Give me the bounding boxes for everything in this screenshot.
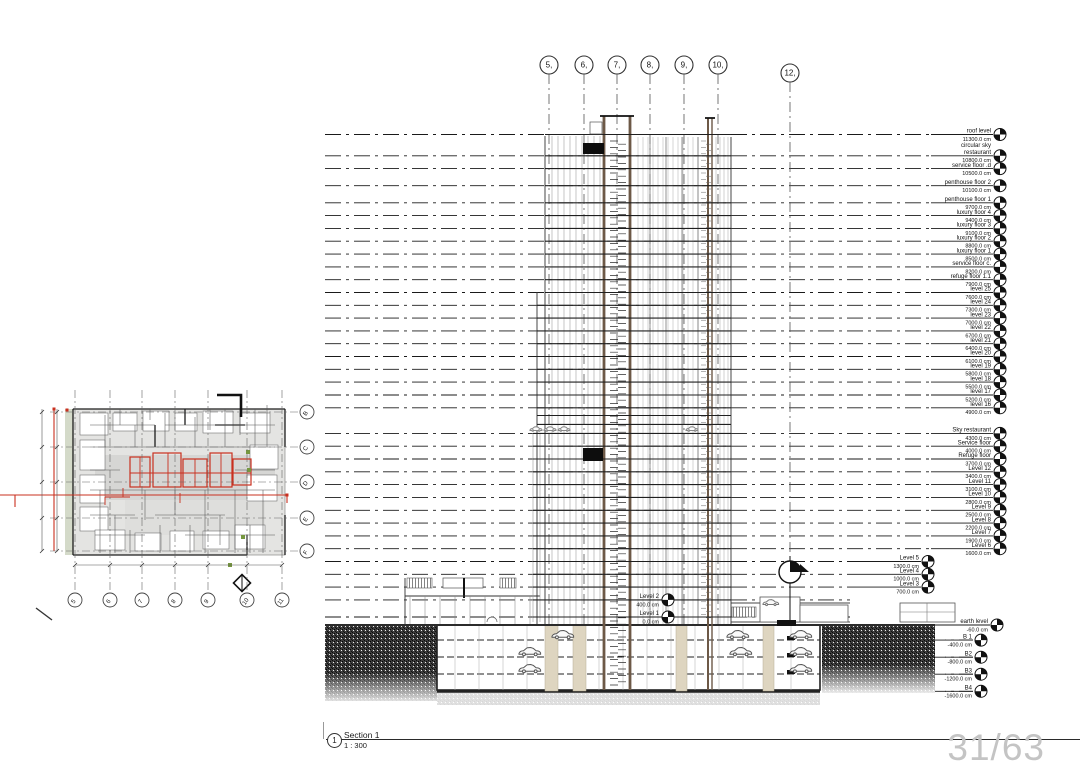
- car-wheel: [688, 430, 690, 432]
- level-name: Level 6: [972, 543, 992, 549]
- plan-room: [80, 440, 105, 470]
- earth-fade-left: [325, 672, 437, 706]
- level-elevation: 400.0 cm: [636, 602, 659, 608]
- datum-level-icon: [922, 581, 934, 593]
- grid-bubble-label: 9,: [681, 61, 688, 70]
- level-name: Level 11: [969, 479, 992, 485]
- car-wheel: [745, 653, 748, 656]
- plan-red-node: [66, 409, 69, 412]
- datum-quadrant: [994, 344, 1000, 350]
- level-row: Level 82200.0 cm: [931, 517, 1006, 531]
- building-section: [325, 116, 955, 706]
- car-wheel: [560, 430, 562, 432]
- datum-quadrant: [994, 369, 1000, 375]
- level-row: level 216400.0 cm: [931, 338, 1006, 352]
- datum-quadrant: [1000, 180, 1006, 186]
- datum-quadrant: [991, 625, 997, 631]
- level-name: Level 7: [972, 530, 992, 536]
- datum-level-icon: [994, 466, 1006, 478]
- datum-quadrant: [994, 280, 1000, 286]
- car-wheel: [523, 653, 526, 656]
- grid-bubble-label: 5,: [546, 61, 553, 70]
- level-elevation: 0.0 cm: [642, 619, 659, 625]
- plan-grid-bubble: 6: [103, 593, 117, 607]
- car-wheel: [794, 670, 797, 673]
- level-row: Level 2400.0 cm: [628, 594, 674, 608]
- grid-bubble: 8,: [641, 56, 659, 74]
- datum-level-icon: [994, 453, 1006, 465]
- datum-level-icon: [994, 504, 1006, 516]
- datum-quadrant: [994, 169, 1000, 175]
- datum-level-icon: [994, 287, 1006, 299]
- plan-corner-slash: [36, 608, 52, 620]
- level-name: penthouse floor 2: [945, 180, 992, 186]
- datum-quadrant: [1000, 338, 1006, 344]
- section-marker-arrow: [800, 564, 809, 572]
- level-row: Level 92500.0 cm: [931, 504, 1006, 518]
- level-name: level 25: [970, 287, 991, 293]
- level-name: level 16: [970, 402, 991, 408]
- level-name: earth level: [960, 619, 988, 625]
- level-elevation: 700.0 cm: [896, 590, 919, 596]
- floor-plan-thumbnail: 567891011BCDEF: [0, 390, 314, 620]
- tower-mid-walls: [650, 137, 698, 624]
- datum-level-icon: [994, 479, 1006, 491]
- plan-grid-bubble: 8: [168, 593, 182, 607]
- datum-quadrant: [1000, 274, 1006, 280]
- plan-grid-bubble: 9: [201, 593, 215, 607]
- level-row: Level 61600.0 cm: [931, 543, 1006, 557]
- datum-quadrant: [997, 619, 1003, 625]
- plan-grid-bubble: B: [300, 405, 314, 419]
- datum-quadrant: [994, 293, 1000, 299]
- car-wheel: [546, 430, 548, 432]
- level-name: Level 4: [900, 569, 920, 575]
- level-row: level 206100.0 cm: [931, 351, 1006, 365]
- car-wheel: [805, 653, 808, 656]
- datum-quadrant: [994, 523, 1000, 529]
- datum-quadrant: [1000, 163, 1006, 169]
- datum-quadrant: [981, 668, 987, 674]
- level-name: Level 8: [972, 517, 992, 523]
- level-row: Level 10.0 cm: [628, 611, 674, 625]
- level-row: level 257600.0 cm: [931, 287, 1006, 301]
- datum-level-icon: [994, 163, 1006, 175]
- podium-box-right2: [800, 605, 848, 622]
- level-name: Level 10: [968, 492, 991, 498]
- datum-level-icon: [994, 197, 1006, 209]
- level-row: B3-1200.0 cm: [944, 668, 987, 682]
- level-name: luxury floor 1: [957, 248, 992, 254]
- grid-bubble-label: 10,: [712, 61, 723, 70]
- plan-red-node: [53, 408, 56, 411]
- level-name: B4: [965, 686, 973, 692]
- core-stair-flights: [610, 141, 626, 685]
- datum-quadrant: [922, 587, 928, 593]
- datum-quadrant: [981, 685, 987, 691]
- datum-quadrant: [1000, 427, 1006, 433]
- datum-level-icon: [662, 594, 674, 606]
- grid-bubble-label: 6,: [581, 61, 588, 70]
- section-marker-quadrant: [790, 561, 801, 572]
- datum-quadrant: [1000, 351, 1006, 357]
- level-name: level 22: [970, 325, 991, 331]
- grid-bubble: 9,: [675, 56, 693, 74]
- level-name: level 21: [970, 338, 991, 344]
- level-row: B4-1600.0 cm: [944, 685, 987, 699]
- datum-level-icon: [994, 338, 1006, 350]
- level-row: refuge floor 1.17900.0 cm: [931, 274, 1006, 288]
- level-elevation: 4900.0 cm: [965, 410, 991, 416]
- plan-room: [80, 475, 105, 503]
- datum-quadrant: [994, 228, 1000, 234]
- level-row: level 164900.0 cm: [931, 402, 1006, 416]
- car-wheel: [556, 636, 559, 639]
- level-name: restaurant: [964, 150, 991, 156]
- datum-quadrant: [1000, 248, 1006, 254]
- datum-quadrant: [994, 267, 1000, 273]
- datum-level-icon: [994, 389, 1006, 401]
- level-name: level 23: [970, 312, 991, 318]
- solid-fill-room-top: [583, 143, 604, 154]
- datum-quadrant: [1000, 466, 1006, 472]
- datum-level-icon: [994, 129, 1006, 141]
- plan-room: [250, 445, 278, 469]
- datum-level-icon: [994, 261, 1006, 273]
- plan-grid-bubble: F: [300, 544, 314, 558]
- level-name: level 17: [970, 389, 991, 395]
- level-row: Level 102800.0 cm: [931, 491, 1006, 505]
- datum-level-icon: [994, 299, 1006, 311]
- car-wheel: [532, 430, 534, 432]
- datum-quadrant: [1000, 325, 1006, 331]
- level-name: Level 5: [900, 556, 920, 562]
- datum-level-icon: [994, 325, 1006, 337]
- datum-quadrant: [994, 156, 1000, 162]
- level-row: level 175200.0 cm: [931, 389, 1006, 403]
- car-wheel: [731, 636, 734, 639]
- datum-level-icon: [994, 517, 1006, 529]
- datum-quadrant: [994, 459, 1000, 465]
- datum-level-icon: [662, 611, 674, 623]
- level-name: luxury floor 2: [957, 235, 992, 241]
- level-name: Sky restaurant: [952, 428, 991, 434]
- car-wheel: [534, 653, 537, 656]
- datum-quadrant: [994, 408, 1000, 414]
- car-wheel: [774, 604, 776, 606]
- tower-wing-verticals: [533, 433, 540, 622]
- level-name: Level 3: [900, 581, 920, 587]
- datum-quadrant: [994, 382, 1000, 388]
- level-row: Level 41000.0 cm: [856, 568, 934, 582]
- datum-quadrant: [1000, 440, 1006, 446]
- car-wheel: [805, 636, 808, 639]
- level-row: penthouse floor 210100.0 cm: [931, 180, 1006, 194]
- datum-level-icon: [994, 274, 1006, 286]
- car-wheel: [538, 430, 540, 432]
- level-name: level 24: [970, 300, 991, 306]
- plan-room: [170, 531, 194, 551]
- level-name: Service floor: [958, 440, 991, 446]
- datum-level-icon: [994, 491, 1006, 503]
- datum-quadrant: [994, 216, 1000, 222]
- level-row: service floor .d10500.0 cm: [931, 163, 1006, 177]
- datum-level-icon: [975, 685, 987, 697]
- grid-bubble-label: 12,: [784, 69, 795, 78]
- section-marker-base: [777, 620, 796, 626]
- plan-room: [113, 413, 137, 431]
- grid-bubble-label: 8,: [647, 61, 654, 70]
- datum-level-icon: [994, 150, 1006, 162]
- car-wheel: [534, 670, 537, 673]
- datum-quadrant: [994, 472, 1000, 478]
- datum-quadrant: [994, 395, 1000, 401]
- level-name: luxury floor 3: [957, 223, 992, 229]
- datum-quadrant: [994, 536, 1000, 542]
- basement-column: [676, 625, 687, 691]
- datum-quadrant: [1000, 210, 1006, 216]
- podium-box-right: [760, 597, 800, 622]
- datum-level-icon: [994, 402, 1006, 414]
- datum-quadrant: [981, 634, 987, 640]
- secondary-stair-flights: [701, 141, 711, 618]
- plan-green-dot: [247, 468, 251, 472]
- level-elevation: -1200.0 cm: [944, 677, 972, 683]
- level-row: Level 71900.0 cm: [931, 530, 1006, 544]
- datum-level-icon: [994, 440, 1006, 452]
- grid-dash-lines: [549, 74, 790, 625]
- datum-quadrant: [1000, 517, 1006, 523]
- datum-level-icon: [991, 619, 1003, 631]
- datum-quadrant: [994, 510, 1000, 516]
- level-name: B2: [965, 651, 973, 657]
- car-wheel: [567, 636, 570, 639]
- level-name: Refuge floor: [958, 453, 991, 459]
- podium-door-arc: [487, 617, 497, 622]
- level-name: service floor .d: [952, 163, 991, 169]
- datum-quadrant: [1000, 402, 1006, 408]
- datum-quadrant: [975, 674, 981, 680]
- datum-quadrant: [1000, 129, 1006, 135]
- datum-quadrant: [994, 485, 1000, 491]
- grid-bubble: 7,: [608, 56, 626, 74]
- datum-quadrant: [1000, 287, 1006, 293]
- datum-level-icon: [975, 651, 987, 663]
- level-name: Level 12: [968, 466, 991, 472]
- level-name: service floor c.: [952, 261, 991, 267]
- level-row: level 226700.0 cm: [931, 325, 1006, 339]
- floor-slabs: [533, 135, 731, 618]
- level-row: Level 3700.0 cm: [856, 581, 934, 595]
- level-elevation: -60.0 cm: [967, 627, 989, 633]
- datum-quadrant: [994, 331, 1000, 337]
- datum-quadrant: [1000, 479, 1006, 485]
- earth-speckle-under: [437, 692, 820, 705]
- level-elevation: -1600.0 cm: [944, 694, 972, 700]
- datum-quadrant: [1000, 150, 1006, 156]
- datum-level-icon: [994, 376, 1006, 388]
- car-glyph: [558, 427, 570, 432]
- solid-fill-room-mid: [583, 448, 603, 461]
- car-wheel: [566, 430, 568, 432]
- datum-quadrant: [922, 574, 928, 580]
- datum-quadrant: [1000, 222, 1006, 228]
- far-right-building: [900, 603, 955, 622]
- datum-level-icon: [994, 312, 1006, 324]
- datum-quadrant: [1000, 299, 1006, 305]
- car-wheel: [523, 670, 526, 673]
- level-name: refuge floor 1.1: [951, 274, 992, 280]
- plan-grid-bubble: D: [300, 475, 314, 489]
- tower-mid-verticals: [638, 137, 698, 624]
- datum-quadrant: [1000, 491, 1006, 497]
- grid-bubble: 5,: [540, 56, 558, 74]
- basement-column: [573, 625, 586, 691]
- datum-quadrant: [1000, 376, 1006, 382]
- datum-quadrant: [1000, 453, 1006, 459]
- section-drawing-canvas: 5,6,7,8,9,10,12, roof level11300.0 cmcir…: [0, 0, 1080, 761]
- datum-quadrant: [994, 241, 1000, 247]
- car-wheel: [552, 430, 554, 432]
- car-glyph: [530, 427, 542, 432]
- plan-green-dot: [246, 450, 250, 454]
- datum-level-icon: [975, 634, 987, 646]
- plan-grid-bubble: 5: [68, 593, 82, 607]
- datum-quadrant: [994, 357, 1000, 363]
- plan-diamond-marker: [234, 575, 251, 592]
- basement-column: [763, 625, 774, 691]
- level-row: level 185500.0 cm: [931, 376, 1006, 390]
- datum-quadrant: [1000, 235, 1006, 241]
- level-elevation: 10100.0 cm: [962, 188, 991, 194]
- datum-quadrant: [981, 651, 987, 657]
- datum-quadrant: [928, 556, 934, 562]
- level-elevation: -800.0 cm: [948, 660, 973, 666]
- datum-quadrant: [994, 446, 1000, 452]
- datum-quadrant: [994, 254, 1000, 260]
- level-elevation: -400.0 cm: [948, 643, 973, 649]
- roof-structure: [590, 122, 602, 134]
- level-name: penthouse floor 1: [945, 197, 992, 203]
- datum-quadrant: [975, 640, 981, 646]
- level-name: Level 2: [640, 594, 660, 600]
- tower-left-verticals: [552, 136, 600, 624]
- datum-quadrant: [1000, 504, 1006, 510]
- podium-louver: [407, 578, 432, 588]
- car-wheel: [766, 604, 768, 606]
- level-name: B3: [965, 668, 973, 674]
- plan-room: [80, 507, 108, 531]
- plan-red-node: [286, 494, 289, 497]
- level-row: level 247300.0 cm: [931, 299, 1006, 313]
- level-name: B 1: [963, 634, 973, 640]
- car-wheel: [742, 636, 745, 639]
- level-row: Level 51300.0 cm: [856, 556, 934, 570]
- datum-quadrant: [922, 562, 928, 568]
- plan-grid-bubble: 7: [135, 593, 149, 607]
- plan-room: [203, 531, 229, 549]
- grid-bubble: 12,: [781, 64, 799, 82]
- datum-level-icon: [994, 427, 1006, 439]
- datum-quadrant: [975, 657, 981, 663]
- datum-level-icon: [994, 180, 1006, 192]
- level-row: level 195800.0 cm: [931, 363, 1006, 377]
- datum-quadrant: [994, 305, 1000, 311]
- plan-grid-bubble: 10: [240, 593, 254, 607]
- level-row: circular skyrestaurant10800.0 cm: [931, 143, 1006, 164]
- datum-quadrant: [1000, 543, 1006, 549]
- plan-grid-bubble: 11: [275, 593, 289, 607]
- car-wheel: [794, 636, 797, 639]
- car-wheel: [694, 430, 696, 432]
- podium-louver: [732, 607, 756, 617]
- level-name: level 20: [970, 351, 991, 357]
- datum-level-icon: [994, 351, 1006, 363]
- level-name: level 18: [970, 376, 991, 382]
- car-wheel: [794, 653, 797, 656]
- plan-green-dot: [241, 535, 245, 539]
- level-row: roof level11300.0 cm: [931, 129, 1006, 143]
- podium-louver: [500, 578, 516, 588]
- car-glyph: [544, 427, 556, 432]
- plan-room: [135, 533, 161, 551]
- drawing-sheet: 5,6,7,8,9,10,12, roof level11300.0 cmcir…: [0, 0, 1080, 761]
- level-name: Level 9: [972, 505, 992, 511]
- datum-level-icon: [994, 248, 1006, 260]
- datum-level-icon: [994, 210, 1006, 222]
- level-name-upper: circular sky: [961, 143, 991, 149]
- datum-quadrant: [975, 691, 981, 697]
- datum-quadrant: [994, 433, 1000, 439]
- datum-quadrant: [1000, 389, 1006, 395]
- datum-quadrant: [1000, 312, 1006, 318]
- datum-level-icon: [975, 668, 987, 680]
- plan-room: [203, 411, 233, 433]
- datum-quadrant: [994, 497, 1000, 503]
- level-elevation: 1600.0 cm: [965, 551, 991, 557]
- datum-level-icon: [994, 222, 1006, 234]
- datum-quadrant: [994, 203, 1000, 209]
- level-row: B2-800.0 cm: [945, 651, 987, 665]
- datum-quadrant: [1000, 261, 1006, 267]
- datum-level-icon: [994, 543, 1006, 555]
- plan-room: [175, 413, 197, 431]
- grid-bubble: 6,: [575, 56, 593, 74]
- level-name: Level 1: [640, 611, 660, 617]
- earth-fade-right: [822, 664, 935, 696]
- level-name: level 19: [970, 364, 991, 370]
- plan-grid-bubble: C: [300, 440, 314, 454]
- plan-room: [80, 413, 108, 435]
- datum-quadrant: [994, 318, 1000, 324]
- grid-bubble: 10,: [709, 56, 727, 74]
- level-row: B 1-400.0 cm: [945, 634, 987, 648]
- datum-level-icon: [994, 530, 1006, 542]
- datum-quadrant: [928, 581, 934, 587]
- datum-quadrant: [994, 135, 1000, 141]
- car-wheel: [805, 670, 808, 673]
- level-name: luxury floor 4: [957, 210, 992, 216]
- datum-level-icon: [922, 568, 934, 580]
- datum-level-icon: [922, 556, 934, 568]
- datum-quadrant: [1000, 530, 1006, 536]
- car-wheel: [734, 653, 737, 656]
- plan-grid-bubble: E: [300, 511, 314, 525]
- datum-quadrant: [994, 549, 1000, 555]
- level-elevation: 10500.0 cm: [962, 171, 991, 177]
- datum-quadrant: [994, 186, 1000, 192]
- level-row: level 237000.0 cm: [931, 312, 1006, 326]
